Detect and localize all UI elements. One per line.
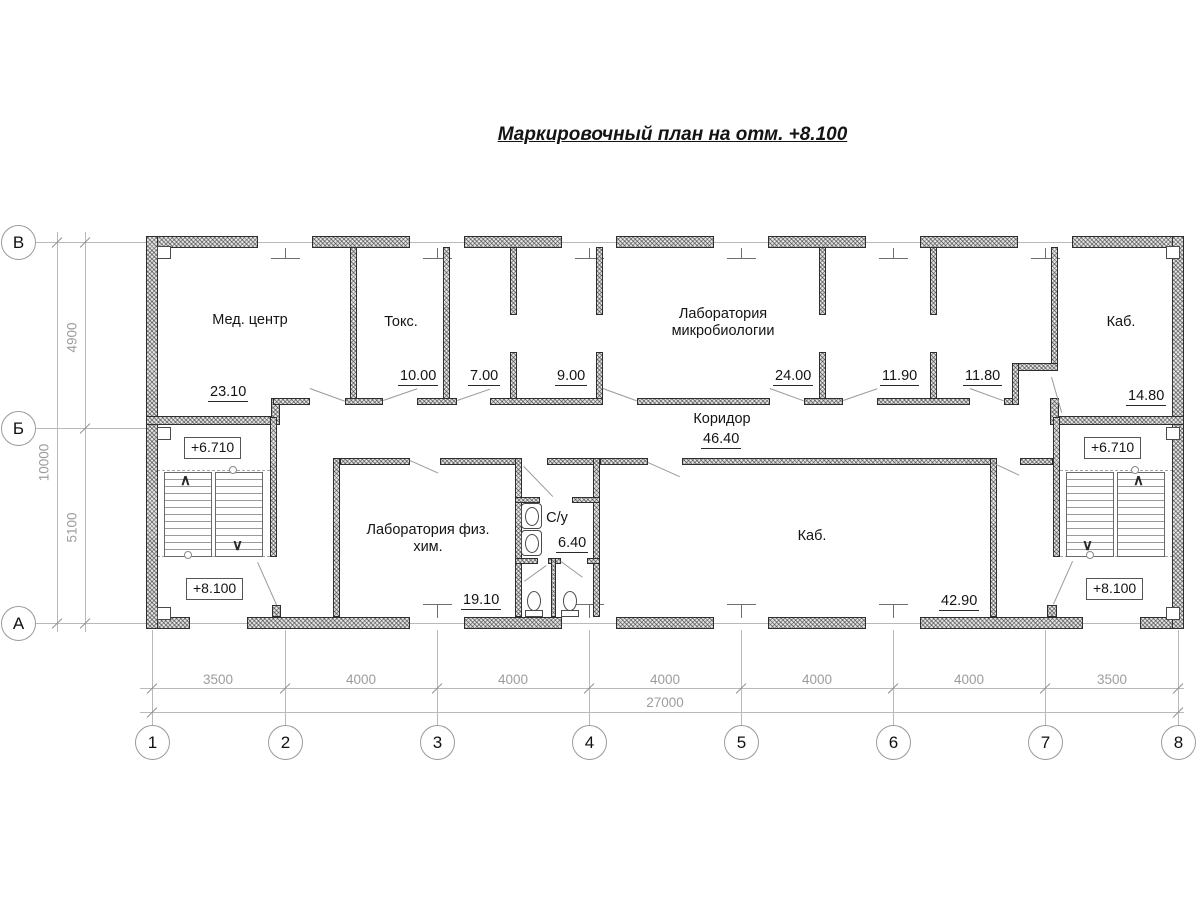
stair-up-arrow-icon: ∧ — [1133, 473, 1144, 488]
pier — [157, 607, 171, 620]
drawing-title: Маркировочный план на отм. +8.100 — [450, 124, 895, 146]
door-jamb — [1047, 605, 1057, 617]
wall-segment — [682, 458, 992, 465]
toilet-tank-icon — [561, 610, 579, 617]
room-label-lab-micro: Лаборатория микробиологии — [657, 306, 789, 339]
elevation-mark-landing-left: +6.710 — [184, 437, 241, 459]
room-label-lab-fiz: Лаборатория физ. хим. — [358, 522, 498, 555]
axis-bubble-row-a: А — [1, 606, 36, 641]
dim-label: 4000 — [787, 672, 847, 687]
dim-label: 4000 — [635, 672, 695, 687]
room-area-11-80: 11.80 — [963, 368, 1002, 386]
wall-segment — [600, 458, 648, 465]
dim-label: 4000 — [939, 672, 999, 687]
room-label-kab-top: Каб. — [1086, 314, 1156, 331]
wall-partition — [443, 247, 450, 399]
axis-bubble-row-b: Б — [1, 411, 36, 446]
room-area-lab-fiz: 19.10 — [461, 592, 501, 610]
door-leaf — [770, 388, 804, 401]
wall-segment — [1020, 458, 1053, 465]
wall-segment — [417, 398, 457, 405]
dim-label: 4000 — [483, 672, 543, 687]
dim-label-5100: 5100 — [65, 505, 80, 551]
pier — [1166, 246, 1180, 259]
axis-bubble-col-7: 7 — [1028, 725, 1063, 760]
wall-partition — [1053, 417, 1060, 557]
dim-label-total: 27000 — [635, 695, 695, 710]
wall-segment — [490, 398, 603, 405]
toilet-tank-icon — [525, 610, 543, 617]
wall-partition — [270, 417, 277, 557]
axis-bubble-row-v: В — [1, 225, 36, 260]
room-area-koridor: 46.40 — [701, 431, 741, 449]
wall-partition — [1012, 363, 1019, 405]
dim-line-left-outer — [57, 232, 58, 632]
wall-segment — [312, 236, 410, 248]
window-mark-icon — [879, 258, 908, 259]
window-mark-icon — [741, 605, 742, 618]
window-mark-icon — [437, 605, 438, 618]
dim-line-left-inner — [85, 232, 86, 632]
room-area-7: 7.00 — [468, 368, 500, 386]
stair-landing-line — [152, 470, 270, 471]
wall-segment — [440, 458, 522, 465]
door-leaf — [843, 388, 877, 401]
axis-bubble-col-4: 4 — [572, 725, 607, 760]
door-leaf — [410, 460, 439, 474]
room-area-toks: 10.00 — [398, 368, 438, 386]
wall-partition — [587, 558, 600, 564]
wall-segment — [340, 458, 410, 465]
axis-line-b — [35, 428, 150, 429]
door-leaf — [383, 388, 417, 401]
room-label-su: С/у — [532, 510, 582, 527]
wall-partition — [510, 352, 517, 399]
elevation-mark-floor-right: +8.100 — [1086, 578, 1143, 600]
room-area-su: 6.40 — [556, 535, 588, 553]
stair-walkline-start-icon — [184, 551, 192, 559]
wall-segment — [637, 398, 770, 405]
wall-segment — [1053, 416, 1184, 425]
axis-bubble-col-5: 5 — [724, 725, 759, 760]
door-leaf — [970, 388, 1004, 401]
wall-partition — [990, 458, 997, 617]
wall-segment — [804, 398, 843, 405]
door-leaf — [524, 565, 546, 582]
stair-up-arrow-icon: ∧ — [180, 473, 191, 488]
sink-icon — [521, 530, 542, 556]
room-label-med-center: Мед. центр — [180, 312, 320, 329]
wall-segment — [616, 236, 714, 248]
dim-label: 3500 — [1082, 672, 1142, 687]
witness-line — [1045, 630, 1046, 725]
stair-walkline-start-icon — [229, 466, 237, 474]
elevation-mark-floor-left: +8.100 — [186, 578, 243, 600]
wall-partition — [593, 458, 600, 617]
pier — [1166, 427, 1180, 440]
dim-label: 3500 — [188, 672, 248, 687]
toilet-icon — [563, 591, 577, 611]
room-label-toks: Токс. — [366, 314, 436, 331]
wall-segment — [247, 617, 410, 629]
wall-segment — [877, 398, 970, 405]
axis-bubble-col-1: 1 — [135, 725, 170, 760]
door-leaf — [603, 388, 637, 401]
wall-segment — [768, 236, 866, 248]
wall-segment — [273, 398, 310, 405]
window-mark-icon — [893, 605, 894, 618]
axis-bubble-col-3: 3 — [420, 725, 455, 760]
door-leaf — [560, 561, 582, 578]
witness-line — [437, 630, 438, 725]
witness-line — [893, 630, 894, 725]
wall-segment — [920, 617, 1083, 629]
door-leaf — [257, 562, 277, 605]
room-area-med-center: 23.10 — [208, 384, 248, 402]
door-leaf — [648, 462, 680, 477]
dim-label-4900: 4900 — [65, 315, 80, 361]
wall-segment — [464, 617, 562, 629]
axis-bubble-col-2: 2 — [268, 725, 303, 760]
axis-bubble-col-6: 6 — [876, 725, 911, 760]
door-leaf — [1053, 561, 1073, 604]
wall-partition — [1051, 247, 1058, 365]
room-area-kab-big: 42.90 — [939, 593, 979, 611]
pier — [157, 427, 171, 440]
dim-line-bottom-2 — [140, 712, 1184, 713]
dim-label-10000: 10000 — [37, 435, 52, 491]
dim-label: 4000 — [331, 672, 391, 687]
wall-partition — [572, 497, 600, 503]
wall-segment — [146, 416, 277, 425]
wall-partition — [551, 558, 556, 617]
room-area-lab-micro: 24.00 — [773, 368, 813, 386]
stair-walkline-start-icon — [1086, 551, 1094, 559]
pier — [1166, 607, 1180, 620]
door-leaf — [310, 388, 345, 402]
wall-partition — [596, 352, 603, 399]
floor-plan-canvas: Маркировочный план на отм. +8.100 4900 5… — [0, 0, 1200, 900]
wall-partition — [819, 352, 826, 399]
wall-segment — [616, 617, 714, 629]
witness-line — [285, 630, 286, 725]
sink-bowl-icon — [525, 534, 539, 553]
wall-segment — [345, 398, 383, 405]
elevation-mark-landing-right: +6.710 — [1084, 437, 1141, 459]
wall-partition — [930, 352, 937, 399]
wall-partition — [930, 247, 937, 315]
wall-partition — [819, 247, 826, 315]
stair-down-arrow-icon: ∨ — [232, 538, 243, 553]
window-mark-icon — [727, 258, 756, 259]
wall-partition — [350, 247, 357, 399]
wall-partition — [596, 247, 603, 315]
room-label-kab-big: Каб. — [777, 528, 847, 545]
stair-walkline-start-icon — [1131, 466, 1139, 474]
door-leaf — [523, 466, 553, 497]
pier — [157, 246, 171, 259]
wall-segment — [768, 617, 866, 629]
stair-landing-line — [1060, 470, 1178, 471]
axis-bubble-col-8: 8 — [1161, 725, 1196, 760]
door-leaf — [457, 389, 490, 401]
room-area-kab-top: 14.80 — [1126, 388, 1166, 406]
wall-partition — [333, 458, 340, 617]
witness-line — [589, 630, 590, 725]
wall-partition — [510, 247, 517, 315]
door-jamb — [272, 605, 281, 617]
toilet-icon — [527, 591, 541, 611]
wall-partition — [515, 558, 538, 564]
window-mark-icon — [271, 258, 300, 259]
room-area-11-90: 11.90 — [880, 368, 919, 386]
room-area-9: 9.00 — [555, 368, 587, 386]
room-label-koridor: Коридор — [662, 411, 782, 428]
window-mark-icon — [589, 605, 590, 618]
witness-line — [741, 630, 742, 725]
dim-line-bottom-1 — [140, 688, 1184, 689]
